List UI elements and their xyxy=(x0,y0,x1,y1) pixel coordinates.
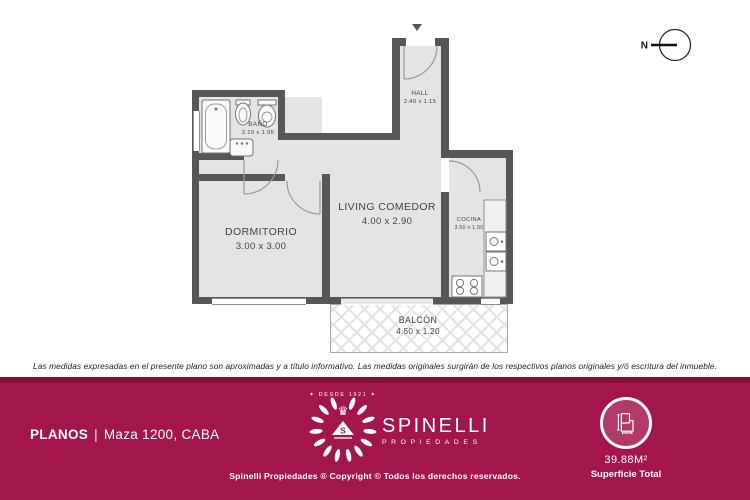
room-dims: 2.40 x 1.15 xyxy=(385,99,455,106)
room-dims: 4.50 x 1.20 xyxy=(348,327,488,337)
surface-total-label: Superficie Total xyxy=(576,469,676,480)
stove-icon xyxy=(452,276,482,297)
room-name: HALL xyxy=(411,90,428,97)
room-label-bano: BAÑO 2.10 x 1.95 xyxy=(226,121,290,137)
room-name: LIVING COMEDOR xyxy=(338,201,436,213)
title-separator: | xyxy=(88,427,104,442)
room-dims: 3.00 x 3.00 xyxy=(191,241,331,253)
kitchen-sink-icon xyxy=(486,232,506,271)
room-dims: 3.50 x 1.50 xyxy=(438,225,500,232)
measurements-disclaimer: Las medidas expresadas en el presente pl… xyxy=(0,361,750,371)
room-name: COCINA xyxy=(457,217,481,223)
property-address: Maza 1200, CABA xyxy=(104,427,220,442)
compass-north-label: N xyxy=(641,41,648,52)
floor-plan: N HALL 2.40 x 1.15 BAÑO 2.10 x 1.95 DORM… xyxy=(0,0,750,377)
room-dims: 4.00 x 2.90 xyxy=(317,216,457,228)
sink-icon xyxy=(230,139,253,156)
entrance-arrow-icon xyxy=(412,24,422,31)
footer: PLANOS|Maza 1200, CABA ✦ DESDE 1921 ✦ xyxy=(0,383,750,500)
brand-subtitle: PROPIEDADES xyxy=(382,439,490,446)
room-name: DORMITORIO xyxy=(225,226,297,238)
room-label-cocina: COCINA 3.50 x 1.50 xyxy=(438,217,500,231)
laurel-wreath-logo-icon: ♛ S xyxy=(306,391,380,471)
room-label-dormitorio: DORMITORIO 3.00 x 3.00 xyxy=(191,226,331,253)
brand-wordmark: SPINELLI PROPIEDADES xyxy=(382,416,490,446)
flyer-page: N HALL 2.40 x 1.15 BAÑO 2.10 x 1.95 DORM… xyxy=(0,0,750,500)
room-dims: 2.10 x 1.95 xyxy=(226,130,290,137)
plan-title: PLANOS|Maza 1200, CABA xyxy=(30,427,219,442)
brand-name: SPINELLI xyxy=(382,416,490,436)
mini-floorplan-icon xyxy=(612,409,640,437)
room-name: BALCÓN xyxy=(399,315,438,325)
section-label: PLANOS xyxy=(30,427,88,442)
surface-total-value: 39.88M² xyxy=(586,454,666,466)
north-compass-icon: N xyxy=(641,30,691,61)
surface-badge xyxy=(600,397,652,449)
crown-icon: ♛ xyxy=(338,404,349,418)
room-name: BAÑO xyxy=(248,121,267,128)
room-label-balcon: BALCÓN 4.50 x 1.20 xyxy=(348,315,488,337)
room-label-hall: HALL 2.40 x 1.15 xyxy=(385,90,455,106)
emblem-initial: S xyxy=(340,426,346,436)
room-label-living: LIVING COMEDOR 4.00 x 2.90 xyxy=(317,201,457,228)
